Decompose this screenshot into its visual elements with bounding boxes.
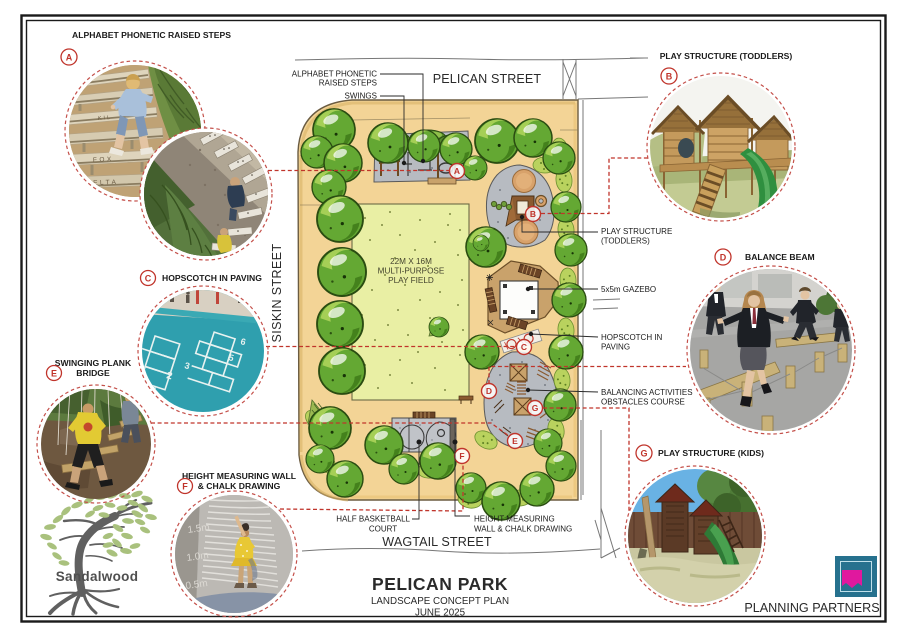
svg-text:KIL: KIL (98, 115, 113, 122)
svg-text:HOPSCOTCH IN PAVING: HOPSCOTCH IN PAVING (162, 273, 262, 283)
svg-text:PLANNING PARTNERS: PLANNING PARTNERS (744, 601, 879, 615)
svg-text:HOPSCOTCH IN: HOPSCOTCH IN (601, 333, 663, 342)
svg-text:C: C (145, 274, 152, 284)
svg-text:D: D (486, 386, 492, 396)
svg-text:PLAY STRUCTURE (KIDS): PLAY STRUCTURE (KIDS) (658, 448, 764, 458)
svg-text:A: A (454, 166, 460, 176)
svg-text:22M X 16M: 22M X 16M (390, 257, 432, 266)
svg-text:FOX: FOX (93, 156, 114, 164)
svg-text:B: B (666, 72, 673, 82)
svg-text:C: C (521, 342, 527, 352)
svg-text:D: D (720, 253, 727, 263)
svg-text:F: F (459, 451, 464, 461)
svg-text:E: E (51, 369, 57, 379)
svg-text:ALPHABET PHONETIC: ALPHABET PHONETIC (292, 70, 377, 79)
svg-text:LANDSCAPE CONCEPT PLAN: LANDSCAPE CONCEPT PLAN (371, 596, 509, 607)
svg-text:PLAY STRUCTURE: PLAY STRUCTURE (601, 227, 672, 236)
svg-text:PAVING: PAVING (601, 343, 630, 352)
svg-text:BALANCE BEAM: BALANCE BEAM (745, 252, 815, 262)
svg-text:G: G (532, 403, 539, 413)
svg-text:ALPHABET PHONETIC RAISED STEPS: ALPHABET PHONETIC RAISED STEPS (72, 30, 231, 40)
svg-text:G: G (640, 449, 647, 459)
svg-text:A: A (66, 53, 73, 63)
svg-text:PELICAN STREET: PELICAN STREET (433, 72, 542, 86)
svg-text:HEIGHT MEASURING: HEIGHT MEASURING (474, 515, 555, 524)
svg-text:F: F (182, 482, 188, 492)
svg-text:OBSTACLES COURSE: OBSTACLES COURSE (601, 398, 685, 407)
svg-text:B: B (530, 209, 536, 219)
svg-text:PELICAN PARK: PELICAN PARK (372, 574, 508, 594)
svg-text:& CHALK DRAWING: & CHALK DRAWING (198, 481, 281, 491)
svg-text:PLAY STRUCTURE (TODDLERS): PLAY STRUCTURE (TODDLERS) (660, 51, 793, 61)
svg-text:SWINGS: SWINGS (345, 92, 377, 101)
svg-text:5x5m GAZEBO: 5x5m GAZEBO (601, 285, 656, 294)
svg-text:Sandalwood: Sandalwood (56, 569, 139, 584)
svg-text:HALF BASKETBALL: HALF BASKETBALL (336, 515, 410, 524)
svg-text:SISKIN STREET: SISKIN STREET (270, 244, 284, 343)
svg-text:WAGTAIL STREET: WAGTAIL STREET (382, 535, 492, 549)
svg-text:BRIDGE: BRIDGE (76, 368, 110, 378)
svg-text:BALANCING ACTIVITIES: BALANCING ACTIVITIES (601, 388, 693, 397)
svg-text:HEIGHT MEASURING WALL: HEIGHT MEASURING WALL (182, 471, 296, 481)
svg-text:SWINGING PLANK: SWINGING PLANK (55, 358, 132, 368)
svg-text:MULTI-PURPOSE: MULTI-PURPOSE (378, 267, 445, 276)
svg-text:JUNE 2025: JUNE 2025 (415, 608, 466, 619)
svg-text:(TODDLERS): (TODDLERS) (601, 237, 650, 246)
svg-text:RAISED STEPS: RAISED STEPS (319, 79, 377, 88)
svg-text:COURT: COURT (369, 525, 397, 534)
svg-text:WALL & CHALK DRAWING: WALL & CHALK DRAWING (474, 525, 572, 534)
svg-text:E: E (512, 436, 518, 446)
svg-text:PLAY FIELD: PLAY FIELD (388, 276, 434, 285)
